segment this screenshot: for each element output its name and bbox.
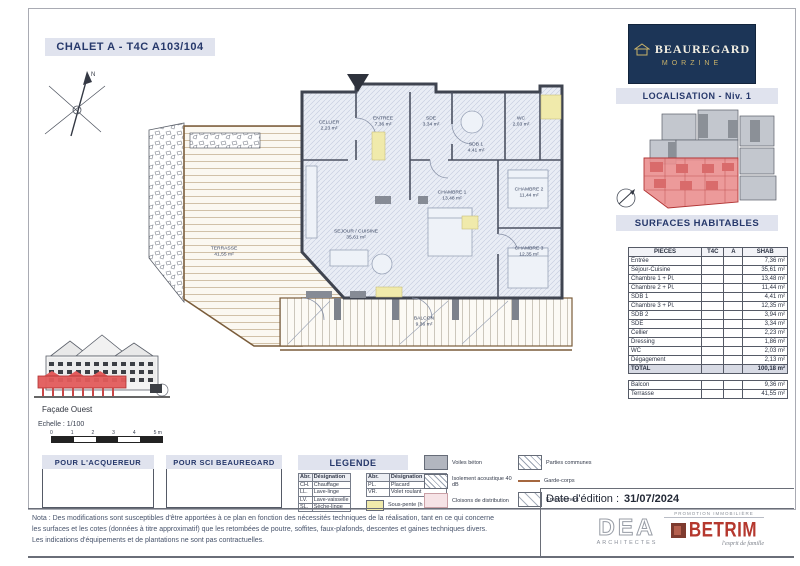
legend-column-mid: Voiles bétonIsolement acoustique 40 dBCl… <box>424 455 516 512</box>
surfaces-col-header: SHAB <box>743 248 788 257</box>
table-row: Chambre 1 + Pl.13,48 m² <box>629 275 788 284</box>
surfaces-col-header: T4C <box>702 248 724 257</box>
legend-label: Cloisons de distribution <box>452 498 509 504</box>
scale-tick: 4 <box>133 430 136 436</box>
builder-logo: PROMOTION IMMOBILIÈRE BETRIM l'esprit de… <box>664 511 764 547</box>
legend-item: Isolement acoustique 40 dB <box>424 474 516 489</box>
scale-tick: 3 <box>112 430 115 436</box>
table-row: Chambre 2 + Pl.11,44 m² <box>629 284 788 293</box>
legend-label: Garde-corps <box>544 478 575 484</box>
buyer-signature-area <box>42 469 154 508</box>
legend-swatch-brownline <box>518 480 540 482</box>
legend-label: Isolement acoustique 40 dB <box>452 476 516 488</box>
signature-block-seller: POUR SCI BEAUREGARD <box>166 455 282 508</box>
surfaces-header: SURFACES HABITABLES <box>616 215 778 231</box>
localisation-map <box>610 106 794 212</box>
table-row: SDB 23,94 m² <box>629 311 788 320</box>
note-text: Nota : Des modifications sont susceptibl… <box>32 514 588 547</box>
signature-block-buyer: POUR L'ACQUEREUR <box>42 455 154 508</box>
table-row: WC2,03 m² <box>629 347 788 356</box>
surfaces-col-header: PIECES <box>629 248 702 257</box>
localisation-header: LOCALISATION - Niv. 1 <box>616 88 778 104</box>
table-row: Séjour-Cuisine35,61 m² <box>629 266 788 275</box>
legend-abbr-row: LV.Lave-vaisselle <box>299 496 351 504</box>
architect-subtitle: ARCHITECTES <box>596 540 658 546</box>
scale-tick: 2 <box>91 430 94 436</box>
brand-logo: BEAUREGARD MORZINE <box>628 24 756 84</box>
edition-date: 31/07/2024 <box>624 493 679 505</box>
legend-swatch-hatch <box>518 455 542 470</box>
brand-name: BEAUREGARD <box>655 42 750 57</box>
scale-bar: Echelle : 1/100 012345 m <box>38 421 172 443</box>
legend-item: Voiles béton <box>424 455 516 470</box>
legend-label: Parties communes <box>546 460 592 466</box>
table-row: Chambre 3 + Pl.12,35 m² <box>629 302 788 311</box>
edition-date-block: Date d'édition : 31/07/2024 <box>540 488 794 509</box>
seller-header: POUR SCI BEAUREGARD <box>166 455 282 469</box>
legend-label: Voiles béton <box>452 460 482 466</box>
buyer-header: POUR L'ACQUEREUR <box>42 455 154 469</box>
facade-label: Façade Ouest <box>42 405 92 414</box>
seller-signature-area <box>166 469 282 508</box>
table-row: SDE3,34 m² <box>629 320 788 329</box>
table-row: Cellier2,23 m² <box>629 329 788 338</box>
legend-swatch-sparse <box>518 492 542 507</box>
legend-abbr-row: LL.Lave-linge <box>299 489 351 497</box>
scale-tick: 1 <box>71 430 74 436</box>
facade-elevation <box>30 328 175 406</box>
table-row: Dégagement2,13 m² <box>629 356 788 365</box>
edition-label: Date d'édition : <box>546 493 619 505</box>
scale-tick: 0 <box>50 430 53 436</box>
legend-header: LEGENDE <box>298 455 408 470</box>
legend-item: Cloisons de distribution <box>424 493 516 508</box>
scale-label: Echelle : 1/100 <box>38 421 172 428</box>
surfaces-col-header: A <box>724 248 743 257</box>
builder-square-icon <box>671 523 686 538</box>
builder-name: BETRIM <box>689 518 757 543</box>
legend-swatch-gray <box>424 455 448 470</box>
table-row: Balcon9,36 m² <box>629 381 788 390</box>
table-row: Terrasse41,55 m² <box>629 390 788 399</box>
table-row: Entrée7,36 m² <box>629 257 788 266</box>
scale-bar-segments <box>51 436 163 443</box>
scale-tick: 5 m <box>154 430 162 436</box>
table-row: Dressing1,86 m² <box>629 338 788 347</box>
chalet-icon <box>634 43 650 56</box>
surfaces-table: PIECEST4CASHAB Entrée7,36 m²Séjour-Cuisi… <box>628 247 788 399</box>
legend-swatch-crosshatch <box>424 474 448 489</box>
legend-item: Parties communes <box>518 455 612 470</box>
legend-item: Garde-corps <box>518 474 612 488</box>
architect-logo: DEA ARCHITECTES <box>596 515 658 546</box>
brand-city: MORZINE <box>662 60 722 67</box>
architect-name: DEA <box>596 515 658 539</box>
table-row: TOTAL100,18 m² <box>629 365 788 374</box>
legend-swatch-pink <box>424 493 448 508</box>
legend-abbr-row: CH.Chauffage <box>299 481 351 489</box>
table-row: SDB 14,41 m² <box>629 293 788 302</box>
mini-compass-icon <box>617 189 635 207</box>
legend-abbr-left: Abr.DésignationCH.ChauffageLL.Lave-linge… <box>298 473 351 512</box>
